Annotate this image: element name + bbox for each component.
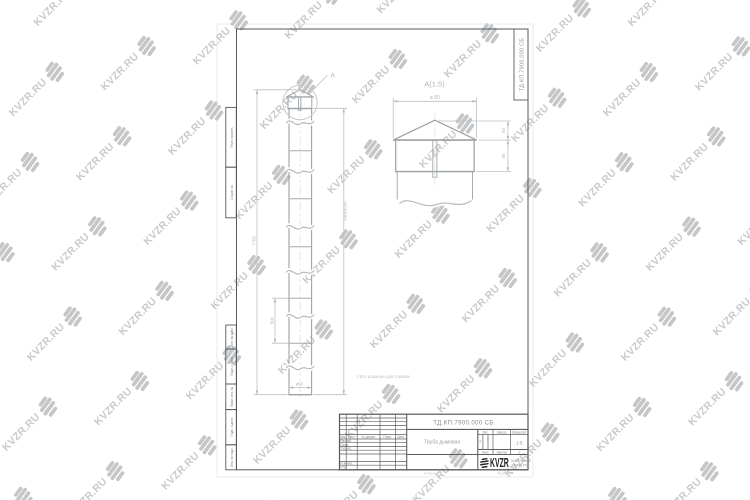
svg-text:Лист: Лист bbox=[482, 451, 489, 455]
svg-text:Взам. инв. №: Взам. инв. № bbox=[230, 386, 234, 406]
svg-text:KVZR.RU: KVZR.RU bbox=[669, 142, 711, 184]
svg-text:KVZR: KVZR bbox=[490, 456, 509, 470]
svg-text:KVZR.RU: KVZR.RU bbox=[711, 296, 750, 338]
svg-text:50: 50 bbox=[501, 128, 506, 133]
svg-text:KVZR.RU: KVZR.RU bbox=[620, 322, 662, 364]
svg-text:А: А bbox=[331, 73, 336, 80]
svg-text:KVZR.RU: KVZR.RU bbox=[160, 450, 202, 492]
svg-text:KVZR.RU: KVZR.RU bbox=[32, 0, 74, 29]
svg-text:KVZR.RU: KVZR.RU bbox=[375, 0, 417, 16]
svg-text:1 Все размеры для справок: 1 Все размеры для справок bbox=[356, 374, 410, 379]
svg-text:Масштаб: Масштаб bbox=[512, 431, 526, 435]
svg-text:Дата: Дата bbox=[397, 435, 404, 439]
svg-text:Лит.: Лит. bbox=[482, 431, 488, 435]
svg-text:Подп. и дата: Подп. и дата bbox=[230, 418, 234, 437]
svg-text:KVZR.RU: KVZR.RU bbox=[528, 348, 570, 390]
svg-text:Инв. № подл.: Инв. № подл. bbox=[230, 447, 234, 467]
svg-text:KVZR.RU: KVZR.RU bbox=[75, 141, 117, 183]
svg-text:ТД.КП.7900.000 СБ: ТД.КП.7900.000 СБ bbox=[520, 38, 526, 91]
svg-text:KVZR.RU: KVZR.RU bbox=[534, 13, 576, 55]
svg-text:ø60: ø60 bbox=[296, 382, 304, 387]
svg-text:ТД.КП.7900.000 СБ: ТД.КП.7900.000 СБ bbox=[433, 420, 493, 426]
svg-text:Инв. № дубл.: Инв. № дубл. bbox=[230, 327, 234, 347]
svg-text:KVZR.RU: KVZR.RU bbox=[0, 167, 25, 209]
svg-text:КОТЕЛЬНЫЕ: КОТЕЛЬНЫЕ bbox=[511, 459, 531, 463]
svg-text:Листов: Листов bbox=[497, 451, 508, 455]
svg-text:А(1:5): А(1:5) bbox=[424, 80, 445, 89]
svg-text:ЗАВОД.РУ: ЗАВОД.РУ bbox=[511, 464, 528, 468]
svg-text:500: 500 bbox=[269, 316, 274, 324]
svg-text:Подп.: Подп. bbox=[383, 435, 392, 439]
svg-text:Т.контр.: Т.контр. bbox=[341, 447, 353, 451]
svg-text:1: 1 bbox=[518, 451, 520, 455]
svg-text:KVZR.RU: KVZR.RU bbox=[142, 206, 184, 248]
svg-text:80: 80 bbox=[501, 153, 506, 158]
svg-text:№ докум.: № докум. bbox=[361, 435, 375, 439]
svg-text:7700: 7700 bbox=[251, 236, 256, 246]
svg-text:KVZR.RU: KVZR.RU bbox=[736, 206, 750, 248]
svg-text:KVZR.RU: KVZR.RU bbox=[25, 322, 67, 364]
svg-text:5400±200: 5400±200 bbox=[343, 201, 348, 221]
svg-text:KVZR.RU: KVZR.RU bbox=[694, 51, 736, 93]
svg-text:KVZR.RU: KVZR.RU bbox=[99, 51, 141, 93]
svg-text:KVZR.RU: KVZR.RU bbox=[117, 296, 159, 338]
svg-text:KVZR.RU: KVZR.RU bbox=[124, 0, 166, 3]
svg-text:KVZR.RU: KVZR.RU bbox=[93, 386, 135, 428]
svg-text:ø 80: ø 80 bbox=[430, 95, 440, 101]
svg-text:KVZR.RU: KVZR.RU bbox=[1, 412, 43, 454]
svg-text:KVZR.RU: KVZR.RU bbox=[7, 77, 49, 119]
svg-text:KVZR.RU: KVZR.RU bbox=[167, 116, 209, 158]
svg-text:Перв. примен.: Перв. примен. bbox=[230, 127, 234, 148]
svg-text:KVZR.RU: KVZR.RU bbox=[552, 257, 594, 299]
svg-text:KVZR.RU: KVZR.RU bbox=[718, 0, 750, 3]
svg-text:Справ. №: Справ. № bbox=[230, 185, 234, 200]
svg-text:KVZR.RU: KVZR.RU bbox=[50, 231, 92, 273]
svg-text:KVZR.RU: KVZR.RU bbox=[602, 77, 644, 119]
svg-text:Масса: Масса bbox=[497, 431, 507, 435]
svg-text:KVZR.RU: KVZR.RU bbox=[577, 167, 619, 209]
svg-text:Формат А4: Формат А4 bbox=[497, 471, 513, 475]
svg-text:KVZR.RU: KVZR.RU bbox=[687, 386, 729, 428]
svg-text:1:5: 1:5 bbox=[516, 440, 523, 445]
svg-text:Подп. и дата: Подп. и дата bbox=[230, 357, 234, 376]
svg-text:KVZR.RU: KVZR.RU bbox=[319, 489, 361, 500]
svg-text:KVZR.RU: KVZR.RU bbox=[626, 0, 668, 29]
svg-text:KVZR.RU: KVZR.RU bbox=[662, 476, 704, 500]
svg-text:Утв.: Утв. bbox=[341, 465, 347, 469]
svg-text:KVZR.RU: KVZR.RU bbox=[595, 412, 637, 454]
svg-text:Труба дымовая: Труба дымовая bbox=[424, 439, 460, 445]
svg-text:KVZR.RU: KVZR.RU bbox=[644, 232, 686, 274]
svg-text:Копировал: Копировал bbox=[424, 471, 440, 475]
svg-text:KVZR.RU: KVZR.RU bbox=[68, 476, 110, 500]
